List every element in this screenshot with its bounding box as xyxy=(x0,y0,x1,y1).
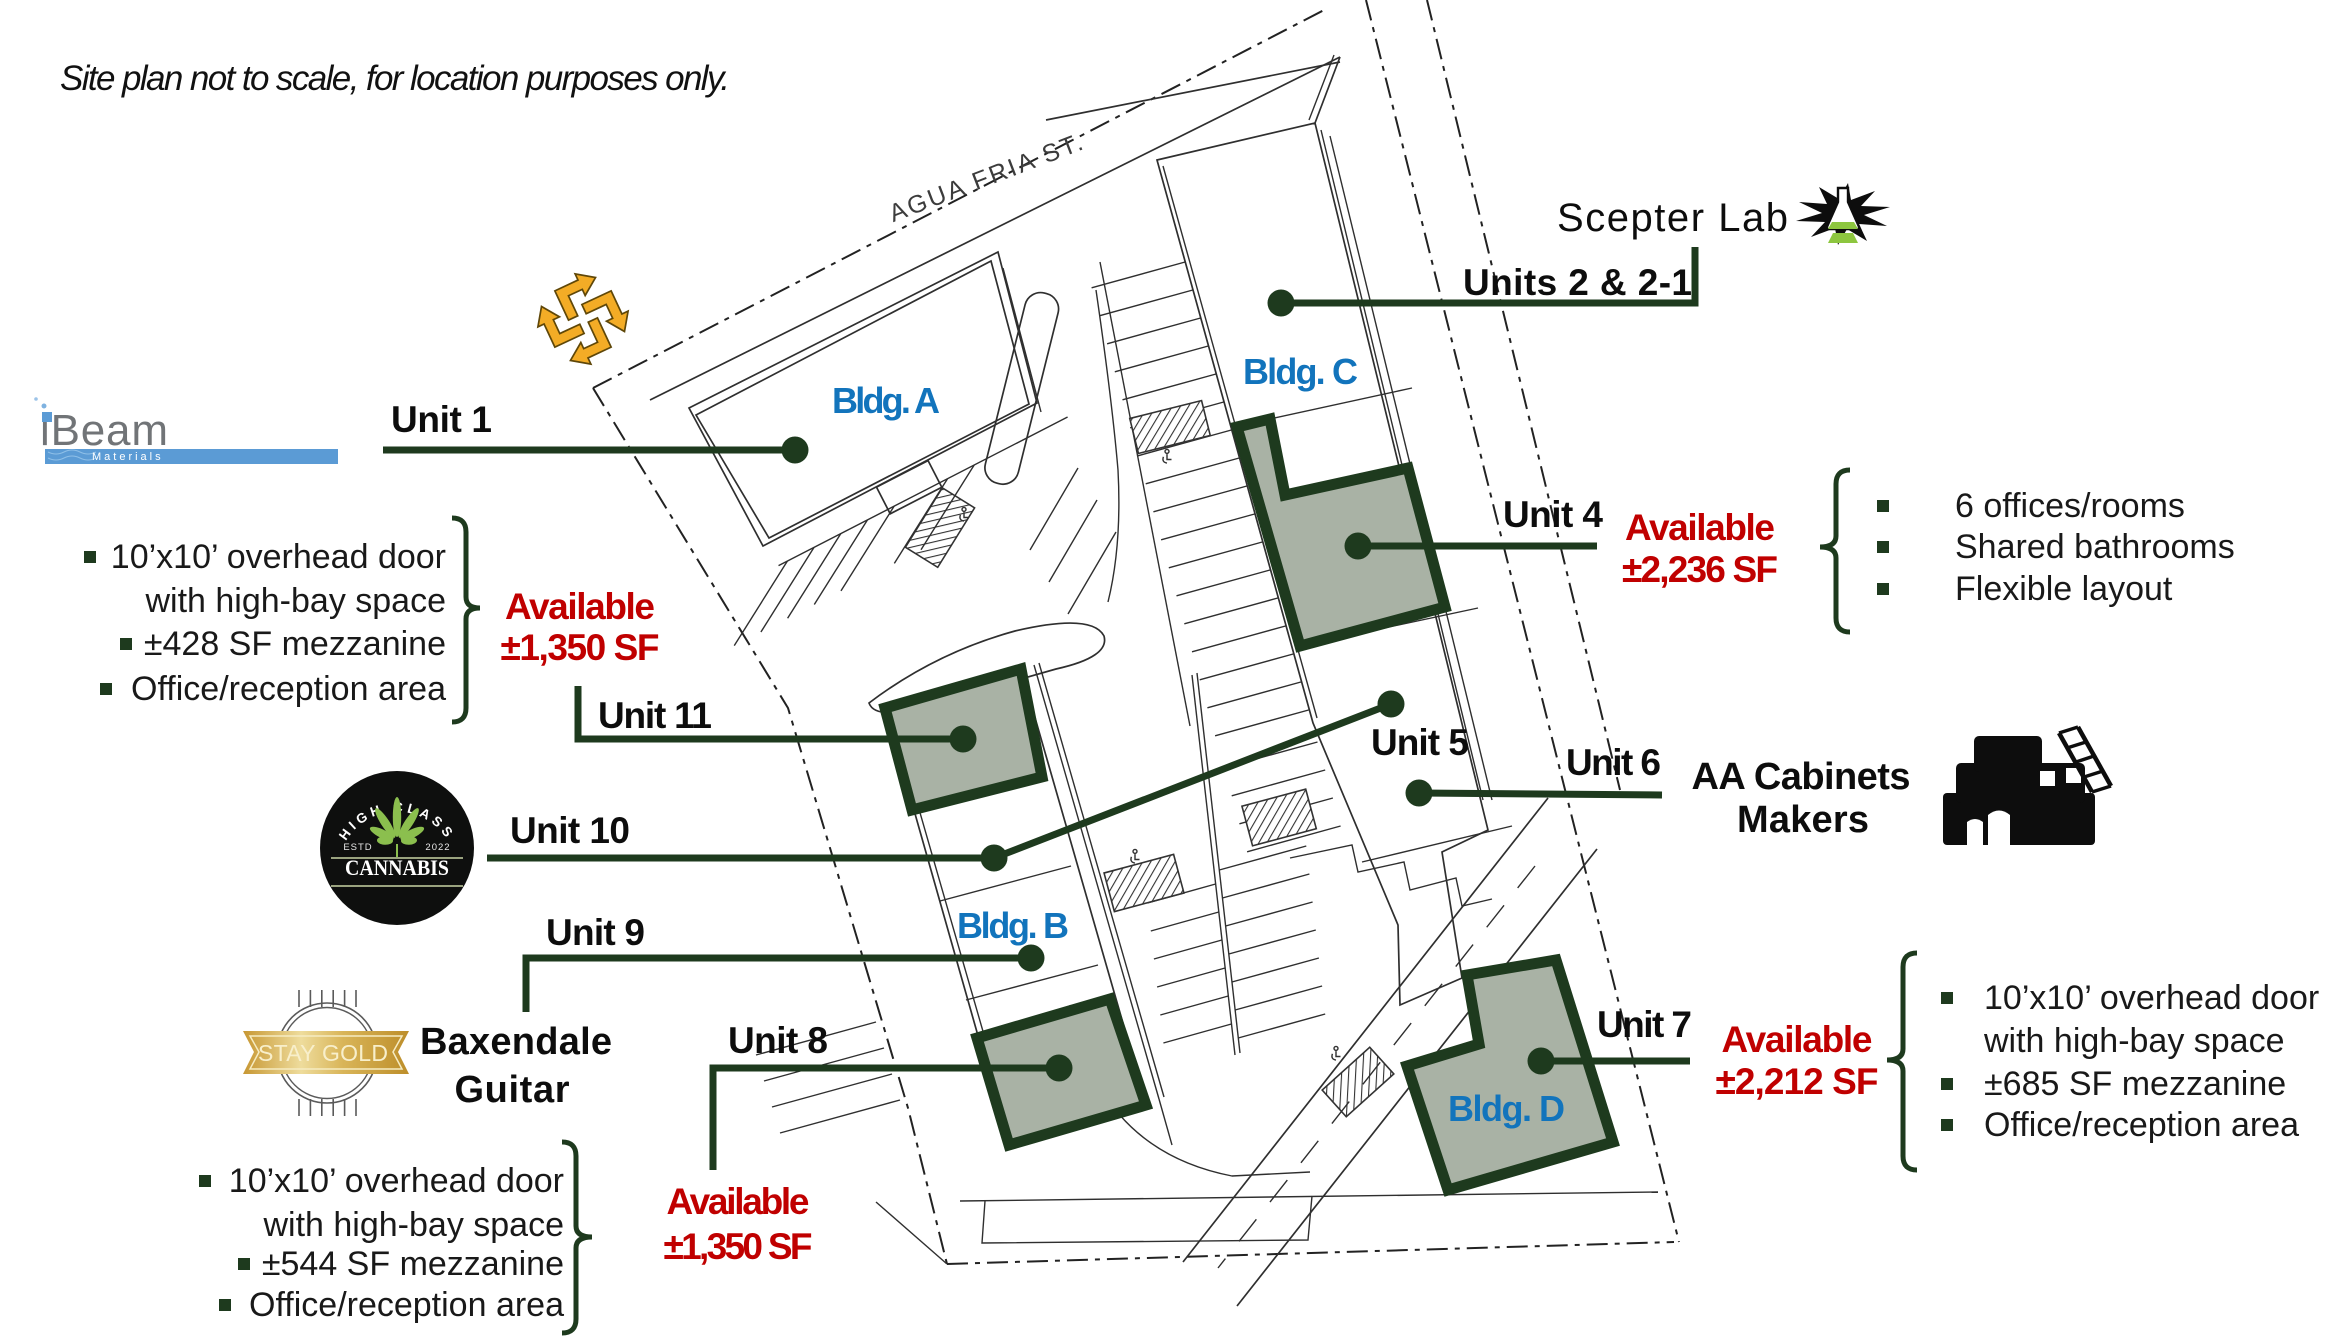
svg-text:10’x10’ overhead door: 10’x10’ overhead door xyxy=(229,1162,564,1200)
svg-text:Guitar: Guitar xyxy=(455,1069,570,1111)
svg-text:Office/reception area: Office/reception area xyxy=(249,1286,564,1324)
svg-text:Unit 5: Unit 5 xyxy=(1371,722,1469,763)
svg-text:with high-bay space: with high-bay space xyxy=(262,1206,564,1244)
svg-text:iBeam: iBeam xyxy=(40,406,168,455)
svg-text:Available: Available xyxy=(505,586,655,627)
svg-text:Bldg. A: Bldg. A xyxy=(832,380,940,421)
svg-text:with high-bay space: with high-bay space xyxy=(1983,1022,2285,1060)
svg-text:Unit 6: Unit 6 xyxy=(1566,742,1661,783)
svg-text:Bldg. D: Bldg. D xyxy=(1448,1088,1565,1129)
svg-text:Unit 4: Unit 4 xyxy=(1503,494,1603,535)
svg-text:Unit 9: Unit 9 xyxy=(546,912,645,953)
svg-text:Shared bathrooms: Shared bathrooms xyxy=(1955,528,2235,566)
svg-text:Baxendale: Baxendale xyxy=(420,1021,612,1063)
svg-text:ESTD: ESTD xyxy=(343,842,372,853)
svg-text:Materials: Materials xyxy=(92,451,164,463)
svg-text:±2,236 SF: ±2,236 SF xyxy=(1622,549,1778,590)
svg-text:Makers: Makers xyxy=(1737,799,1869,841)
svg-text:2022: 2022 xyxy=(425,842,450,853)
svg-text:Bldg. B: Bldg. B xyxy=(957,905,1069,946)
svg-text:Office/reception area: Office/reception area xyxy=(1984,1106,2299,1144)
svg-text:±685 SF mezzanine: ±685 SF mezzanine xyxy=(1984,1065,2286,1103)
svg-text:with high-bay space: with high-bay space xyxy=(144,582,446,620)
svg-text:Unit 11: Unit 11 xyxy=(598,695,712,736)
svg-text:±1,350 SF: ±1,350 SF xyxy=(664,1226,813,1267)
svg-text:Flexible layout: Flexible layout xyxy=(1955,570,2173,608)
svg-text:Scepter Lab: Scepter Lab xyxy=(1557,196,1790,240)
svg-text:Unit 8: Unit 8 xyxy=(728,1020,828,1061)
svg-text:STAY GOLD: STAY GOLD xyxy=(258,1040,394,1066)
svg-text:Office/reception area: Office/reception area xyxy=(131,670,446,708)
svg-text:CANNABIS: CANNABIS xyxy=(345,855,449,880)
svg-text:10’x10’ overhead door: 10’x10’ overhead door xyxy=(1984,979,2319,1017)
svg-text:Units 2 & 2-1: Units 2 & 2-1 xyxy=(1463,262,1692,303)
svg-text:Available: Available xyxy=(1722,1019,1873,1060)
svg-text:Unit 1: Unit 1 xyxy=(391,399,492,440)
svg-text:±544 SF mezzanine: ±544 SF mezzanine xyxy=(262,1245,564,1283)
svg-text:Site plan not to scale, for lo: Site plan not to scale, for location pur… xyxy=(60,59,730,98)
svg-text:AA Cabinets: AA Cabinets xyxy=(1692,756,1911,798)
svg-text:Available: Available xyxy=(1625,507,1775,548)
svg-text:Bldg. C: Bldg. C xyxy=(1243,351,1358,392)
svg-text:±1,350 SF: ±1,350 SF xyxy=(501,627,660,668)
svg-text:Unit 10: Unit 10 xyxy=(510,810,630,851)
svg-text:Available: Available xyxy=(667,1181,810,1222)
svg-text:10’x10’ overhead door: 10’x10’ overhead door xyxy=(111,538,446,576)
svg-text:Unit 7: Unit 7 xyxy=(1597,1004,1692,1045)
svg-text:±2,212 SF: ±2,212 SF xyxy=(1716,1061,1879,1102)
svg-text:±428 SF mezzanine: ±428 SF mezzanine xyxy=(144,625,446,663)
svg-text:6 offices/rooms: 6 offices/rooms xyxy=(1955,487,2185,525)
